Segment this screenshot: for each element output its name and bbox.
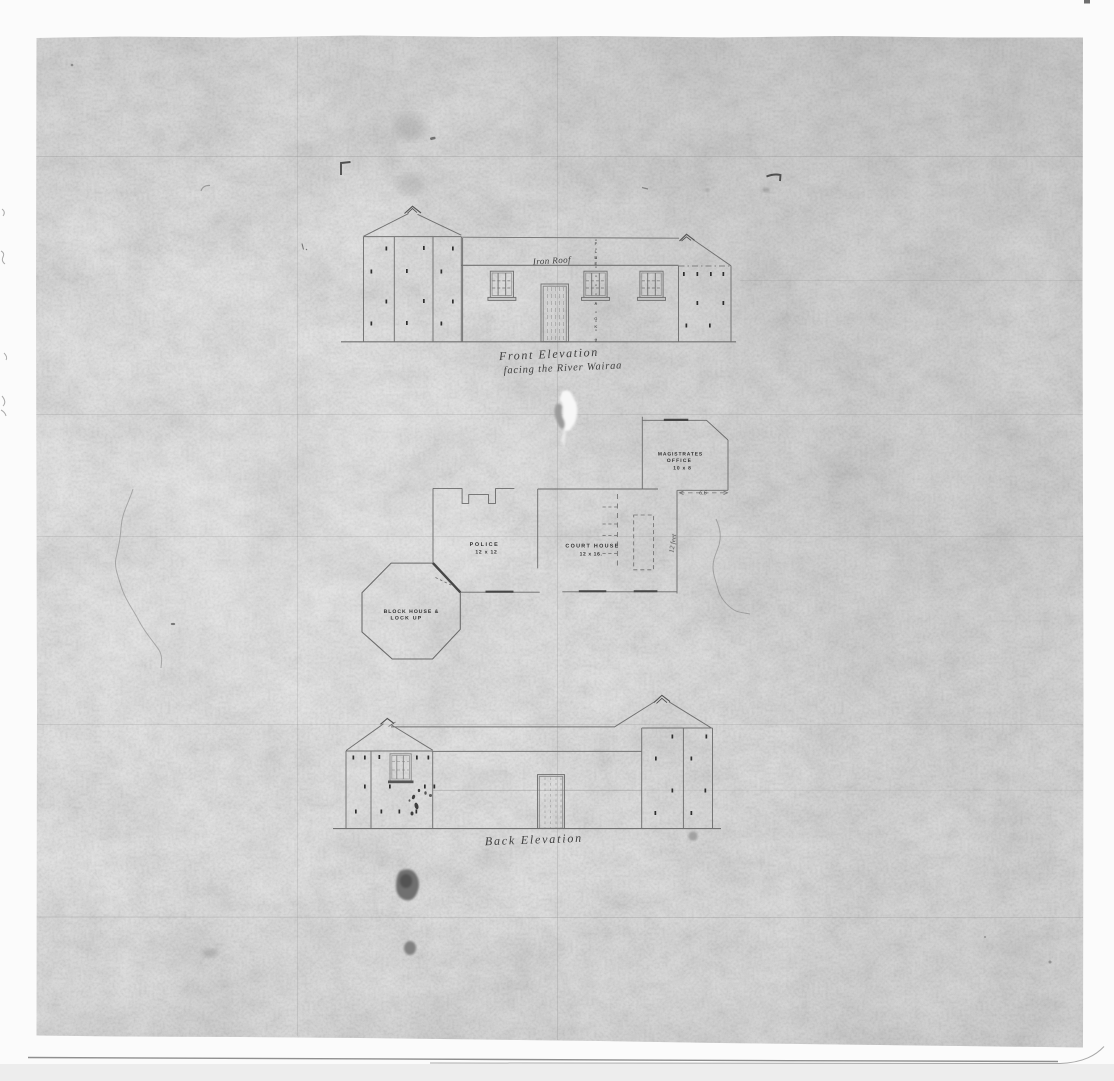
svg-text:K: K <box>594 324 597 329</box>
svg-text:Iron Roof: Iron Roof <box>532 254 573 266</box>
svg-text:G: G <box>594 316 597 321</box>
svg-text:MAGISTRATES: MAGISTRATES <box>658 452 703 458</box>
svg-text:10 x 8: 10 x 8 <box>673 466 691 472</box>
svg-text:6.6: 6.6 <box>699 491 707 497</box>
svg-text:12 x 12: 12 x 12 <box>475 550 497 556</box>
svg-text:POLICE: POLICE <box>470 542 500 548</box>
svg-text:A: A <box>594 301 597 306</box>
svg-text:LOCK UP: LOCK UP <box>390 616 422 622</box>
svg-text:V: V <box>594 338 597 343</box>
svg-text:OFFICE: OFFICE <box>667 458 692 464</box>
svg-text:B: B <box>594 255 597 260</box>
svg-text:COURT HOUSE: COURT HOUSE <box>565 544 619 550</box>
svg-text:12 x 16.: 12 x 16. <box>580 552 603 558</box>
svg-text:BLOCK HOUSE &: BLOCK HOUSE & <box>384 609 440 615</box>
svg-text:E: E <box>594 261 597 266</box>
